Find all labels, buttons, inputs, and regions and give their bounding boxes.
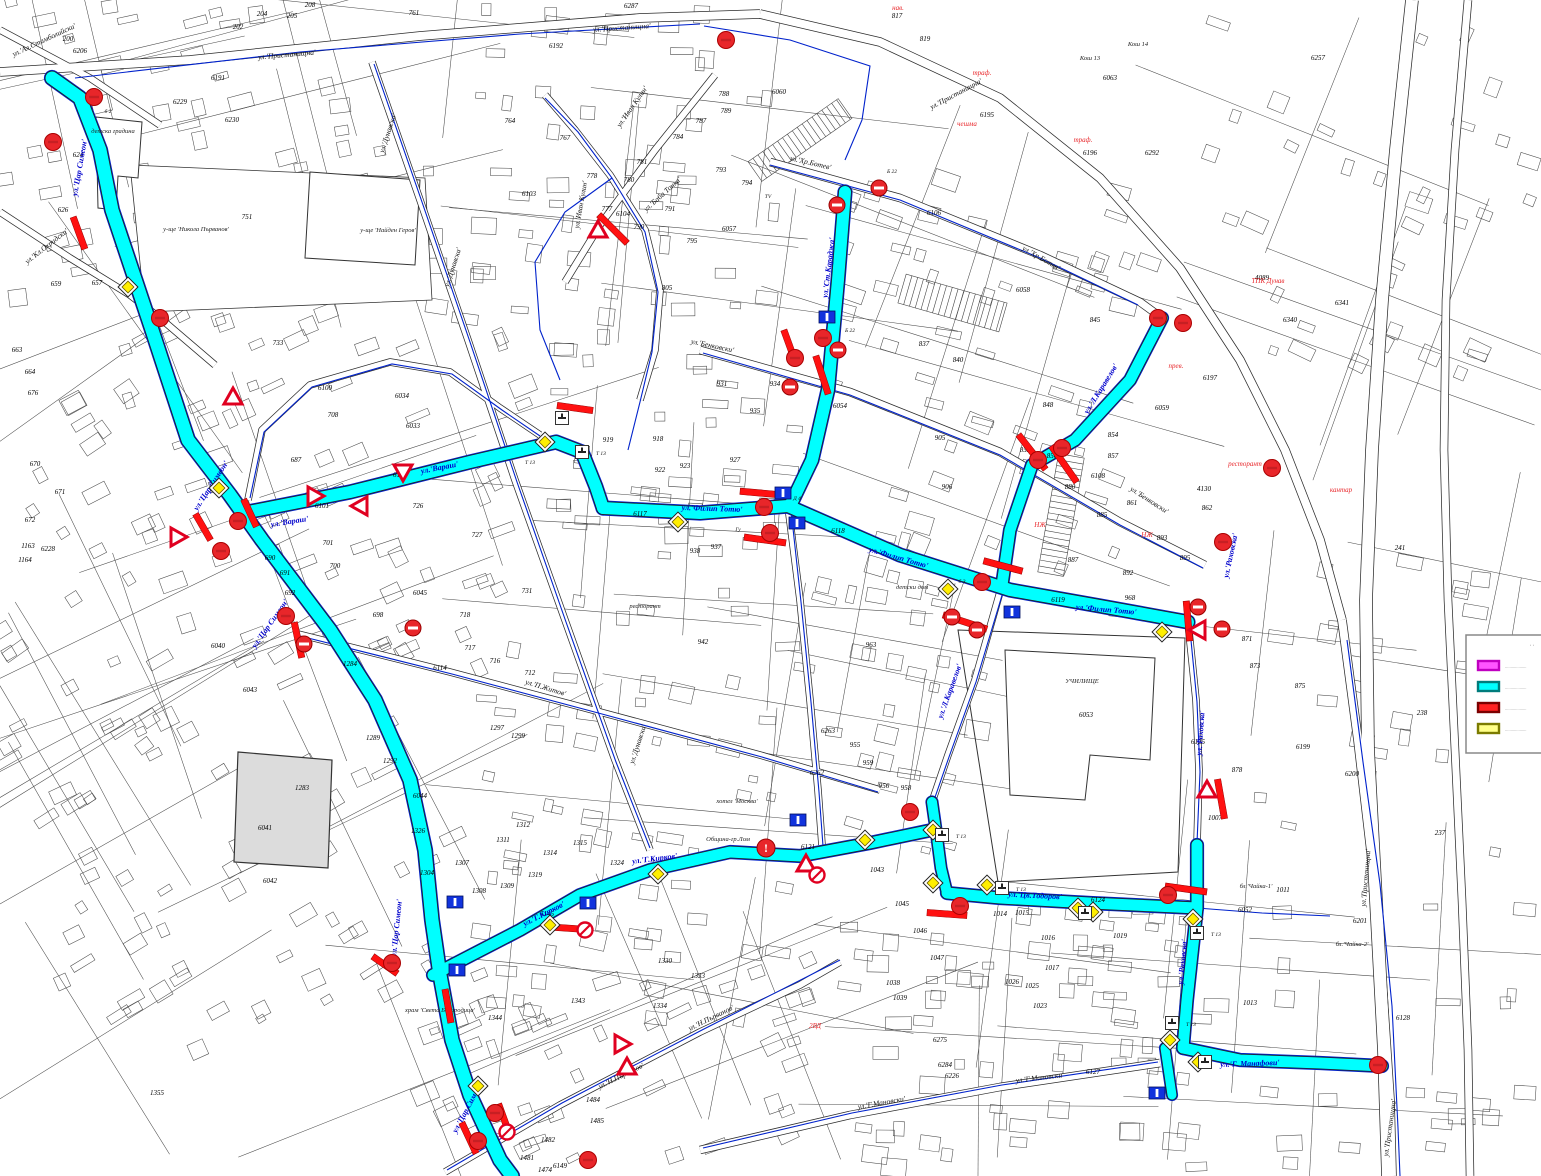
parcel-number: 659 <box>51 280 62 288</box>
parcel-number: 700 <box>330 562 341 570</box>
parcel-number: 963 <box>866 641 877 649</box>
hydrant-marker-icon <box>1370 1057 1387 1074</box>
parcel-number: 1015 <box>1015 909 1030 917</box>
parcel-number: 805 <box>662 284 673 292</box>
parcel-number: 6195 <box>980 111 995 119</box>
map-canvas[interactable]: 2002022042052086206622962307517616287619… <box>0 0 1541 1176</box>
red-poi-label: НЖ <box>1140 531 1153 539</box>
parcel-number: 6114 <box>433 664 447 672</box>
poi-label: Кош 14 <box>1127 41 1149 48</box>
parcel-number: 676 <box>28 389 39 397</box>
legend-swatch <box>1478 703 1499 712</box>
hydrant-marker-icon <box>1215 534 1232 551</box>
sign-tag-label: Д 4 <box>792 495 801 502</box>
parcel-number: 6118 <box>831 527 845 535</box>
parcel-number: 657 <box>92 279 103 287</box>
parcel-number: 819 <box>920 35 931 43</box>
parcel-number: 6201 <box>1353 917 1367 925</box>
hydrant-marker-icon <box>1030 452 1047 469</box>
parcel-number: 794 <box>742 179 753 187</box>
parcel-number: 205 <box>287 12 298 20</box>
parcel-number: 727 <box>472 531 483 539</box>
hydrant-marker-icon <box>787 350 804 367</box>
parcel-number: 880 <box>1065 483 1076 491</box>
hydrant-marker-icon <box>213 543 230 560</box>
parcel-number: 6262 <box>810 769 825 777</box>
parcel-number: 200 <box>63 35 74 43</box>
red-poi-label: НЖ <box>1033 521 1046 529</box>
hydrant-marker-icon <box>1264 460 1281 477</box>
parcel-number: 6341 <box>1335 299 1349 307</box>
parcel-number: 6196 <box>1083 149 1098 157</box>
cadastral-map-svg: 2002022042052086206622962307517616287619… <box>0 0 1541 1176</box>
parcel-number: 1039 <box>893 994 908 1002</box>
prohibition-sign-icon <box>500 1125 515 1140</box>
hydrant-marker-icon <box>152 310 169 327</box>
parcel-number: 733 <box>273 339 284 347</box>
no-entry-sign-icon <box>1190 599 1206 615</box>
parcel-number: 764 <box>505 117 516 125</box>
parcel-number: 716 <box>490 657 501 665</box>
parcel-number: 691 <box>280 569 291 577</box>
parcel-number: 6106 <box>927 209 942 217</box>
parcel-number: 795 <box>687 237 698 245</box>
parcel-number: 927 <box>730 456 741 464</box>
parcel-number: 672 <box>25 516 36 524</box>
parcel-number: 6263 <box>821 727 836 735</box>
parcel-number: 1315 <box>573 839 588 847</box>
parcel-number: 4130 <box>1197 485 1212 493</box>
parcel-number: 1017 <box>1045 964 1060 972</box>
parcel-number: 789 <box>721 107 732 115</box>
parcel-number: 1043 <box>870 866 885 874</box>
poi-label: храм 'Света Богородица' <box>404 1007 476 1014</box>
prohibition-sign-icon <box>578 923 593 938</box>
sign-tag-label: Б 22 <box>844 328 855 334</box>
parcel-number: 204 <box>257 10 268 18</box>
parcel-number: 6108 <box>1091 472 1106 480</box>
parcel-number: 6128 <box>1396 1014 1411 1022</box>
sign-tag-label: ТV <box>765 194 772 200</box>
sign-tag-label: Т 13 <box>1016 887 1026 893</box>
parcel-number: 1334 <box>653 1002 668 1010</box>
parcel-number: 958 <box>901 784 912 792</box>
no-entry-sign-icon <box>1214 621 1230 637</box>
parcel-number: 1481 <box>520 1154 534 1162</box>
parcel-number: 1314 <box>543 849 558 857</box>
parcel-number: 784 <box>673 133 684 141</box>
parcel-number: 708 <box>328 411 339 419</box>
parcel-number: 6033 <box>406 422 421 430</box>
sign-tag-label: Гу <box>734 527 741 533</box>
hydrant-marker-icon <box>45 134 62 151</box>
parcel-number: 208 <box>305 1 316 9</box>
parcel-number: 942 <box>698 638 709 646</box>
traffic-sign-icon <box>1199 1056 1212 1069</box>
info-sign-icon <box>580 897 596 909</box>
legend-box <box>1466 635 1541 753</box>
poi-label: у-ще 'Никола Първанов' <box>162 226 229 233</box>
parcel-number: 1284 <box>343 660 358 668</box>
no-entry-sign-icon <box>969 622 985 638</box>
sign-tag-label: Т 13 <box>596 451 606 457</box>
info-sign-icon <box>447 896 463 908</box>
legend-header: · · <box>1530 643 1535 649</box>
poi-label: УЧИЛИЩЕ <box>1065 678 1098 685</box>
parcel-number: 887 <box>1068 556 1079 564</box>
hydrant-marker-icon <box>815 330 832 347</box>
alert-circle-icon: ! <box>757 839 775 857</box>
parcel-number: 922 <box>655 466 666 474</box>
hydrant-marker-icon <box>952 898 969 915</box>
parcel-number: 1324 <box>610 859 625 867</box>
parcel-number: 919 <box>603 436 614 444</box>
red-poi-label: нав. <box>892 4 904 12</box>
parcel-number: 731 <box>522 587 533 595</box>
hydrant-marker-icon <box>902 804 919 821</box>
parcel-number: 664 <box>25 368 36 376</box>
parcel-number: 934 <box>770 380 781 388</box>
parcel-number: 6229 <box>173 98 188 106</box>
parcel-number: 1016 <box>1041 934 1056 942</box>
parcel-number: 1326 <box>411 827 426 835</box>
parcel-number: 701 <box>323 539 334 547</box>
parcel-number: 670 <box>30 460 41 468</box>
parcel-number: 6063 <box>1103 74 1118 82</box>
parcel-number: 848 <box>1043 401 1054 409</box>
hydrant-marker-icon <box>756 499 773 516</box>
parcel-number: 1023 <box>1033 1002 1048 1010</box>
parcel-number: 862 <box>1202 504 1213 512</box>
sign-tag-label: б 3 <box>959 578 966 585</box>
parcel-number: 6119 <box>1051 596 1065 604</box>
parcel-number: 1355 <box>150 1089 165 1097</box>
special-building <box>234 752 332 868</box>
hydrant-marker-icon <box>487 1105 504 1122</box>
parcel-number: 1309 <box>500 882 515 890</box>
parcel-number: 6149 <box>553 1162 568 1170</box>
traffic-sign-icon <box>936 829 949 842</box>
parcel-number: 238 <box>1417 709 1428 717</box>
parcel-number: 6044 <box>413 792 428 800</box>
parcel-number: 767 <box>560 134 571 142</box>
parcel-number: 956 <box>879 782 890 790</box>
parcel-number: 718 <box>460 611 471 619</box>
no-entry-sign-icon <box>871 180 887 196</box>
parcel-number: 1011 <box>1276 886 1289 894</box>
parcel-number: 777 <box>602 205 613 213</box>
parcel-number: 788 <box>719 90 730 98</box>
info-sign-icon <box>819 311 835 323</box>
parcel-number: 892 <box>1123 569 1134 577</box>
parcel-number: 1007 <box>1208 814 1223 822</box>
info-sign-icon <box>1149 1087 1165 1099</box>
legend-swatch <box>1478 724 1499 733</box>
parcel-number: 787 <box>696 117 707 125</box>
parcel-number: 6057 <box>722 225 737 233</box>
parcel-number: 1013 <box>1243 999 1258 1007</box>
red-poi-label: чешма <box>957 120 977 128</box>
parcel-number: 1038 <box>886 979 901 987</box>
parcel-number: 959 <box>863 759 874 767</box>
parcel-number: 893 <box>1157 534 1168 542</box>
parcel-number: 1482 <box>541 1136 556 1144</box>
parcel-number: 237 <box>1435 829 1446 837</box>
parcel-number: 717 <box>465 644 476 652</box>
parcel-number: 6197 <box>1203 374 1218 382</box>
parcel-number: 6054 <box>833 402 848 410</box>
parcel-number: 1343 <box>571 997 586 1005</box>
parcel-number: 873 <box>1250 662 1261 670</box>
parcel-number: 698 <box>373 611 384 619</box>
poi-label: бл.'Чайка-2' <box>1336 941 1369 948</box>
parcel-number: 906 <box>942 483 953 491</box>
parcel-number: 202 <box>233 23 244 31</box>
parcel-number: 905 <box>935 434 946 442</box>
parcel-number: 885 <box>1097 511 1108 519</box>
sign-tag-label: Б 22 <box>886 169 897 175</box>
red-poi-label: ТПК Дунав <box>1252 277 1285 285</box>
parcel-number: 871 <box>1242 635 1253 643</box>
sign-tag-label: Т 13 <box>956 834 966 840</box>
parcel-number: 6191 <box>211 74 225 82</box>
sign-tag-label: б 2 <box>105 108 112 115</box>
parcel-number: 793 <box>716 166 727 174</box>
traffic-sign-icon <box>556 412 569 425</box>
parcel-number: 1283 <box>295 784 310 792</box>
parcel-number: 780 <box>624 176 635 184</box>
parcel-number: 968 <box>1125 594 1136 602</box>
traffic-sign-icon <box>1166 1017 1179 1030</box>
hydrant-marker-icon <box>1150 310 1167 327</box>
parcel-number: 6060 <box>772 88 787 96</box>
legend-label: ··················· <box>1505 665 1526 670</box>
parcel-number: 1046 <box>913 927 928 935</box>
parcel-number: 1014 <box>993 910 1008 918</box>
parcel-number: 895 <box>1180 554 1191 562</box>
parcel-number: 671 <box>55 488 66 496</box>
parcel-number: 938 <box>690 547 701 555</box>
hydrant-marker-icon <box>1160 887 1177 904</box>
hydrant-marker-icon <box>974 574 991 591</box>
parcel-number: 6292 <box>1145 149 1160 157</box>
parcel-number: 1474 <box>538 1166 553 1174</box>
parcel-number: 6043 <box>243 686 258 694</box>
parcel-number: 6117 <box>633 510 647 518</box>
parcel-number: 626 <box>58 206 69 214</box>
hydrant-marker-icon <box>762 525 779 542</box>
parcel-number: 241 <box>1395 544 1406 552</box>
hydrant-marker-icon <box>384 955 401 972</box>
sign-tag-label: Т 13 <box>1211 932 1221 938</box>
poi-label: Кош 13 <box>1079 55 1101 62</box>
parcel-number: 6199 <box>1296 743 1311 751</box>
parcel-number: 6103 <box>522 190 537 198</box>
parcel-number: 1312 <box>516 821 531 829</box>
parcel-number: 6100 <box>318 384 333 392</box>
parcel-number: 1485 <box>590 1117 605 1125</box>
no-entry-sign-icon <box>296 636 312 652</box>
legend-swatch <box>1478 661 1499 670</box>
parcel-number: 1047 <box>930 954 945 962</box>
info-sign-icon <box>790 814 806 826</box>
parcel-number: 857 <box>1108 452 1119 460</box>
poi-label: бл.'Чайка-1' <box>1240 883 1273 890</box>
parcel-number: 1330 <box>658 957 673 965</box>
sign-tag-label: Т 13 <box>1186 1022 1196 1028</box>
parcel-number: 6104 <box>616 210 631 218</box>
parcel-number: 6041 <box>258 824 272 832</box>
info-sign-icon <box>449 964 465 976</box>
legend: · ······································… <box>1466 635 1541 753</box>
poi-label: детски дом <box>896 584 928 591</box>
parcel-number: 1307 <box>455 859 470 867</box>
parcel-number: 687 <box>291 456 302 464</box>
red-poi-label: траф. <box>973 69 992 77</box>
parcel-number: 6340 <box>1283 316 1298 324</box>
parcel-number: 861 <box>1127 499 1138 507</box>
parcel-number: 931 <box>717 380 728 388</box>
parcel-number: 6040 <box>211 642 226 650</box>
parcel-number: 923 <box>680 462 691 470</box>
parcel-number: 761 <box>409 9 420 17</box>
poi-label: ресторант <box>628 603 661 610</box>
parcel-number: 778 <box>587 172 598 180</box>
parcel-number: 817 <box>892 12 903 20</box>
parcel-number: 878 <box>1232 766 1243 774</box>
parcel-number: 6127 <box>1086 1068 1101 1076</box>
parcel-number: 6192 <box>549 42 564 50</box>
parcel-number: 1289 <box>366 734 381 742</box>
parcel-number: 875 <box>1295 682 1306 690</box>
parcel-number: 1299 <box>511 732 526 740</box>
parcel-number: 1311 <box>496 836 509 844</box>
parcel-number: 1045 <box>895 900 910 908</box>
red-poi-label: ресторант <box>1227 460 1262 468</box>
parcel-number: 781 <box>637 158 648 166</box>
parcel-number: 1026 <box>1005 978 1020 986</box>
parcel-number: 1164 <box>18 556 32 564</box>
prohibition-sign-icon <box>810 868 825 883</box>
parcel-number: 1319 <box>528 871 543 879</box>
no-entry-sign-icon <box>782 379 798 395</box>
parcel-number: 791 <box>665 205 676 213</box>
parcel-number: 6058 <box>1016 286 1031 294</box>
parcel-number: 854 <box>1108 431 1119 439</box>
hydrant-marker-icon <box>1175 315 1192 332</box>
hydrant-marker-icon <box>1054 440 1071 457</box>
poi-label: детска градина <box>91 128 135 135</box>
parcel-number: 1308 <box>472 887 487 895</box>
parcel-number: 1297 <box>490 724 505 732</box>
parcel-number: 918 <box>653 435 664 443</box>
info-sign-icon <box>775 487 791 499</box>
parcel-number: 1304 <box>420 869 435 877</box>
svg-text:!: ! <box>764 841 768 855</box>
parcel-number: 840 <box>953 356 964 364</box>
parcel-number: 935 <box>750 407 761 415</box>
parcel-number: 6230 <box>225 116 240 124</box>
parcel-number: 6121 <box>801 843 815 851</box>
traffic-sign-icon <box>1079 907 1092 920</box>
parcel-number: 6053 <box>1079 711 1094 719</box>
hydrant-marker-icon <box>580 1152 597 1169</box>
parcel-number: 663 <box>12 346 23 354</box>
legend-label: ··················· <box>1505 686 1526 691</box>
sign-tag-label: Т 13 <box>525 460 535 466</box>
parcel-number: 6287 <box>624 2 639 10</box>
info-sign-icon <box>789 517 805 529</box>
poi-label: у-ще 'Найден Геров' <box>359 227 416 234</box>
special-building <box>305 172 420 265</box>
legend-swatch <box>1478 682 1499 691</box>
no-entry-sign-icon <box>944 609 960 625</box>
parcel-number: 6275 <box>933 1036 948 1044</box>
red-poi-label: траф. <box>1074 136 1093 144</box>
hydrant-marker-icon <box>718 32 735 49</box>
parcel-number: 6226 <box>945 1072 960 1080</box>
parcel-number: 6034 <box>395 392 410 400</box>
traffic-sign-icon <box>1191 927 1204 940</box>
parcel-number: 1292 <box>383 757 398 765</box>
parcel-number: 6284 <box>938 1061 953 1069</box>
parcel-number: 6059 <box>1155 404 1170 412</box>
hydrant-marker-icon <box>86 89 103 106</box>
legend-label: ··················· <box>1505 728 1526 733</box>
red-poi-label: прев. <box>1169 362 1184 370</box>
parcel-number: 845 <box>1090 316 1101 324</box>
poi-label: хотел 'Москва' <box>715 798 758 805</box>
traffic-sign-icon <box>996 882 1009 895</box>
no-entry-sign-icon <box>405 620 421 636</box>
poi-label: Община-гр.Лом <box>706 836 750 843</box>
parcel-number: 955 <box>850 741 861 749</box>
parcel-number: 1019 <box>1113 932 1128 940</box>
parcel-number: 1344 <box>488 1014 503 1022</box>
traffic-sign-icon <box>576 446 589 459</box>
info-sign-icon <box>1004 606 1020 618</box>
parcel-number: 1025 <box>1025 982 1040 990</box>
parcel-number: 6257 <box>1311 54 1326 62</box>
hydrant-marker-icon <box>278 608 295 625</box>
parcel-number: 837 <box>919 340 930 348</box>
parcel-number: 6042 <box>263 877 278 885</box>
parcel-number: 6200 <box>1345 770 1360 778</box>
red-poi-label: 2ВД <box>809 1022 821 1030</box>
parcel-number: 6206 <box>73 47 88 55</box>
no-entry-sign-icon <box>830 342 846 358</box>
parcel-number: 690 <box>265 554 276 562</box>
legend-label: ··················· <box>1505 707 1526 712</box>
parcel-number: 1484 <box>586 1096 601 1104</box>
parcel-number: 937 <box>711 543 722 551</box>
parcel-number: 692 <box>285 589 296 597</box>
parcel-number: 6045 <box>413 589 428 597</box>
parcel-number: 6101 <box>315 502 329 510</box>
parcel-number: 1333 <box>691 972 706 980</box>
hydrant-marker-icon <box>470 1133 487 1150</box>
no-entry-sign-icon <box>829 197 845 213</box>
parcel-number: 6228 <box>41 545 56 553</box>
parcel-number: 6052 <box>1238 906 1253 914</box>
parcel-number: 712 <box>525 669 536 677</box>
red-poi-label: кантар <box>1330 486 1353 494</box>
parcel-number: 751 <box>242 213 253 221</box>
parcel-number: 1163 <box>21 542 35 550</box>
parcel-number: 790 <box>634 223 645 231</box>
parcel-number: 726 <box>413 502 424 510</box>
hydrant-marker-icon <box>230 513 247 530</box>
